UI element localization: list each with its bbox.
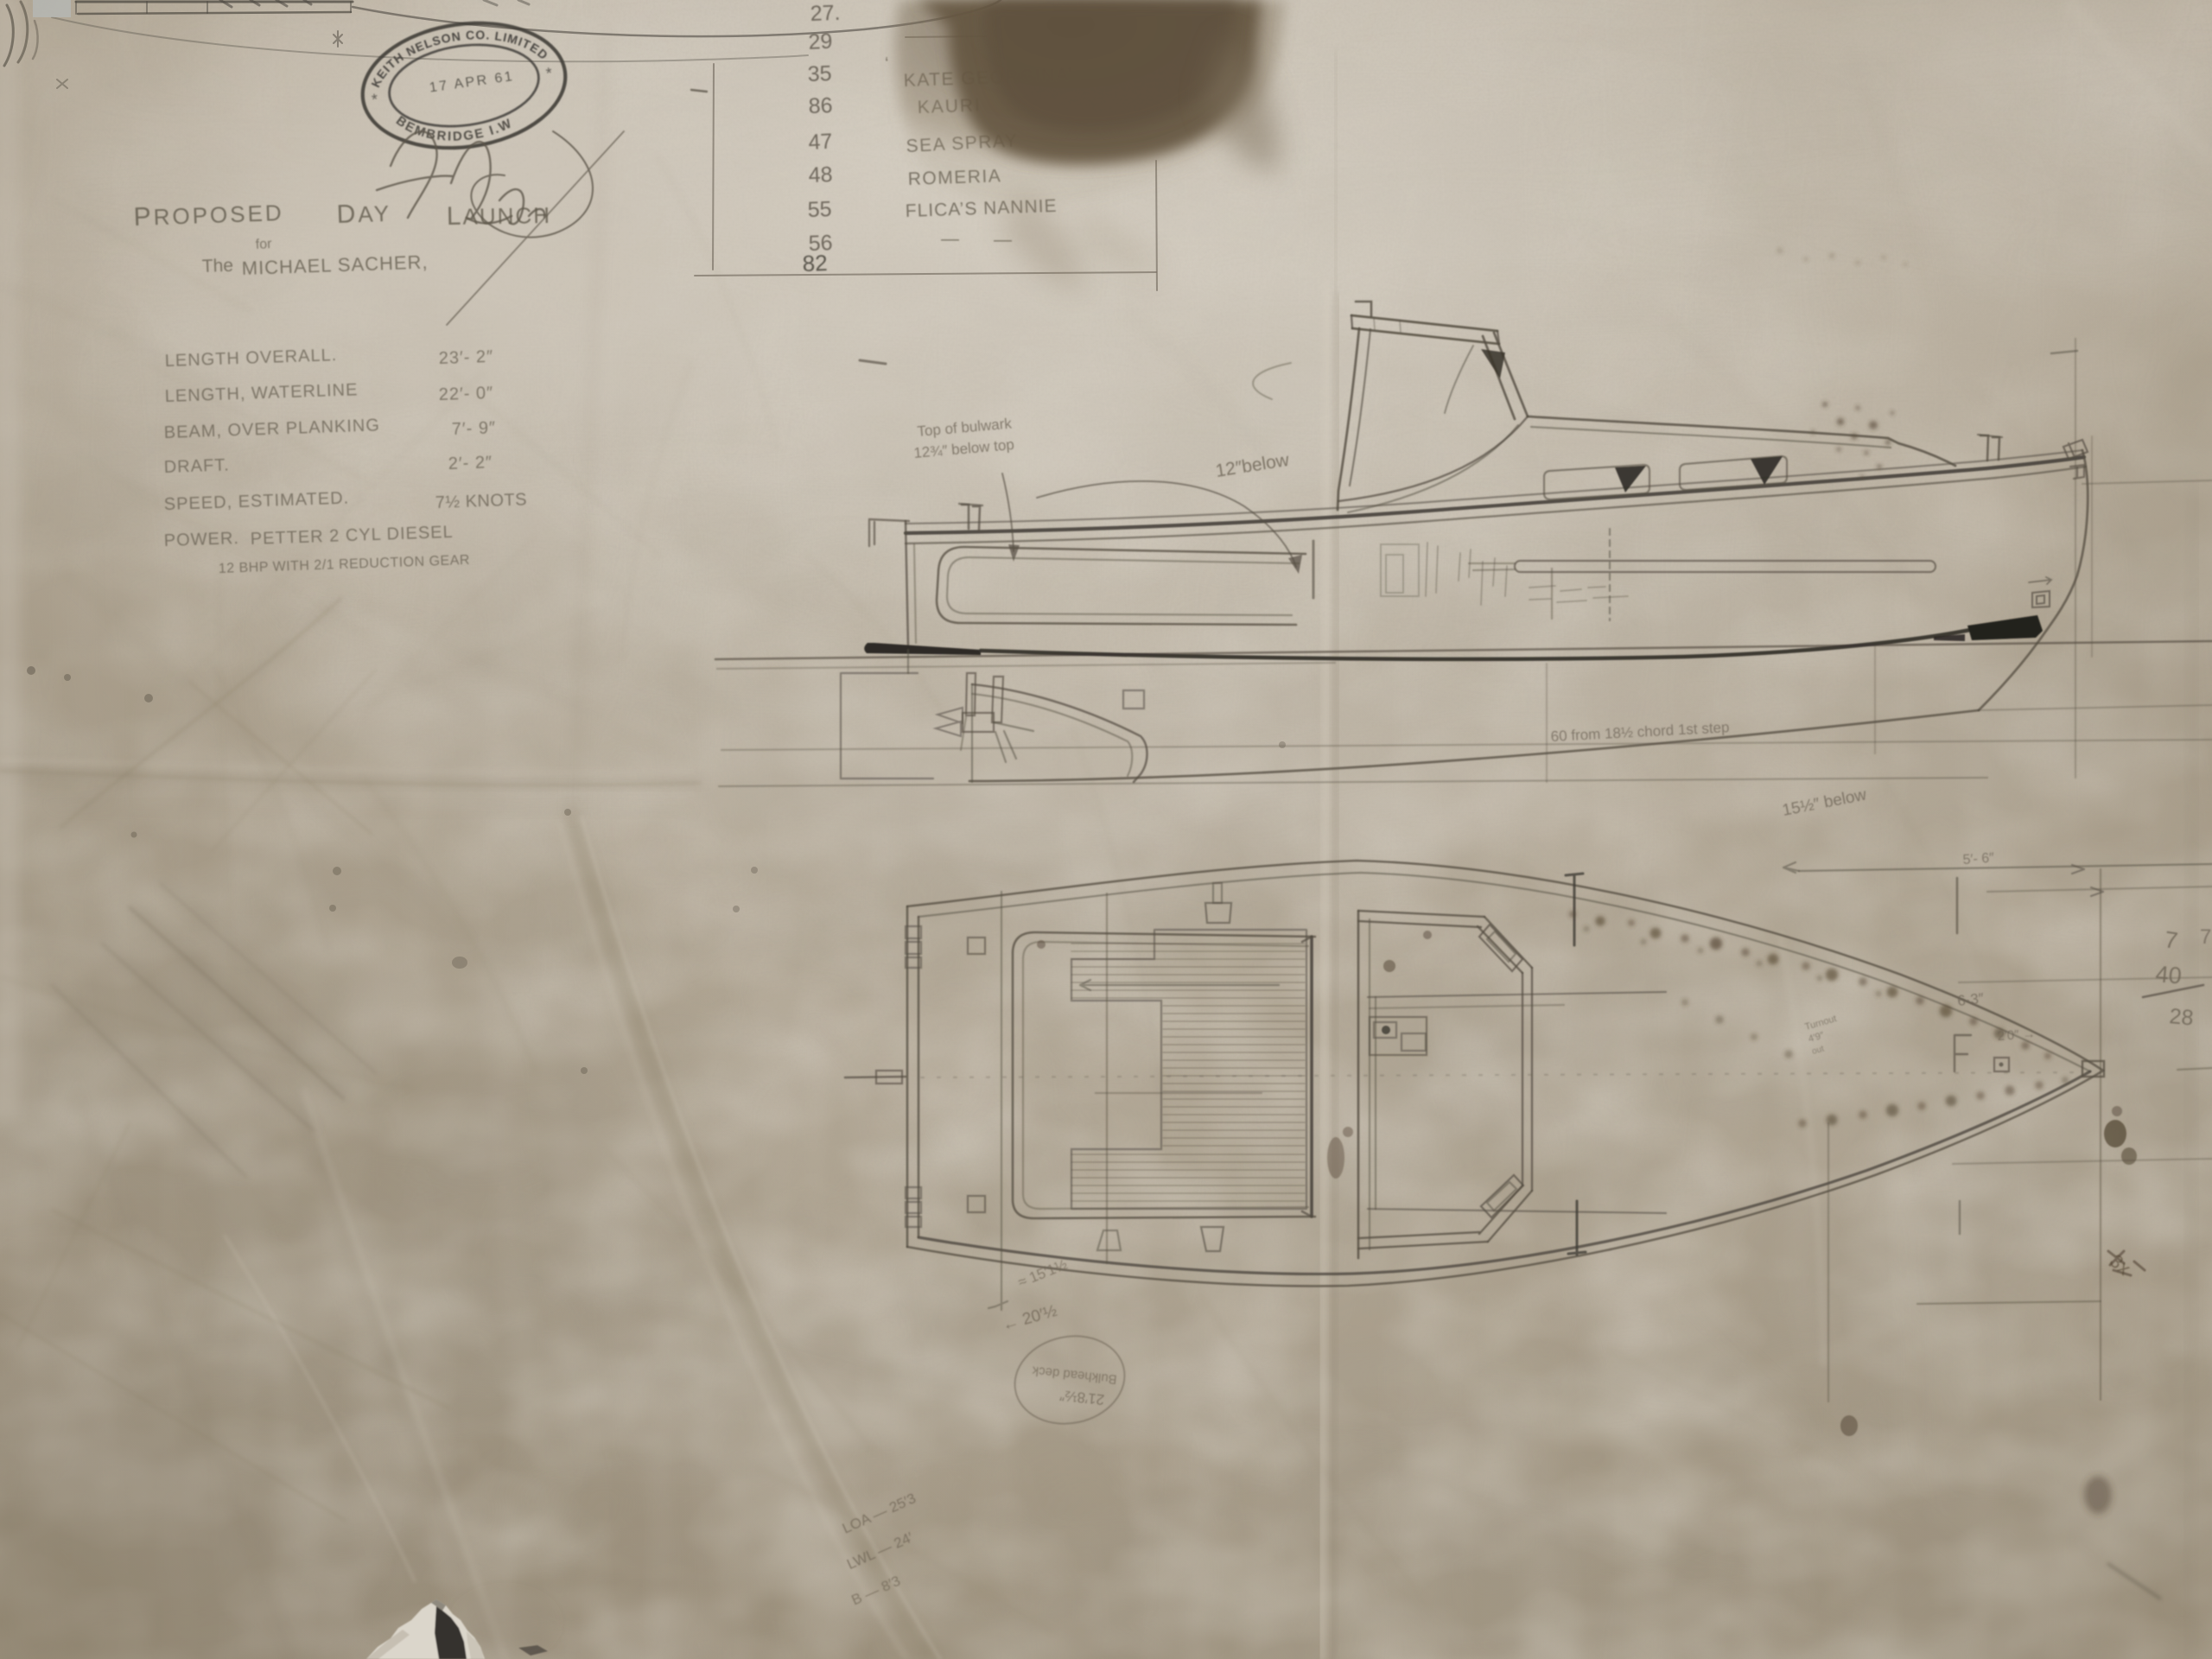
svg-text:86: 86: [808, 93, 833, 118]
svg-text:—: —: [941, 229, 959, 249]
svg-text:DRAFT.: DRAFT.: [163, 455, 230, 477]
svg-text:7½ KNOTS: 7½ KNOTS: [435, 490, 527, 512]
svg-text:55: 55: [807, 197, 832, 222]
svg-text:35: 35: [807, 61, 832, 86]
svg-text:DAY: DAY: [336, 199, 392, 229]
svg-text:2′0″ →: 2′0″ →: [1997, 1027, 2036, 1044]
svg-text:48: 48: [808, 162, 833, 188]
svg-text:POWER.: POWER.: [163, 529, 239, 550]
svg-text:‘: ‘: [885, 54, 888, 73]
svg-text:7′- 9″: 7′- 9″: [451, 418, 496, 439]
svg-text:27.: 27.: [810, 1, 841, 26]
svg-text:47: 47: [808, 130, 833, 155]
svg-text:7: 7: [2200, 925, 2211, 949]
svg-text:for: for: [255, 237, 272, 252]
svg-text:6·3″: 6·3″: [1956, 990, 1984, 1009]
svg-text:The: The: [201, 256, 233, 276]
svg-text:2′- 2″: 2′- 2″: [448, 453, 493, 474]
svg-text:28: 28: [2168, 1004, 2194, 1030]
svg-text:23′- 2″: 23′- 2″: [438, 347, 493, 368]
svg-text:40: 40: [2154, 961, 2183, 989]
svg-text:LAUNCH: LAUNCH: [447, 200, 552, 231]
svg-text:22′- 0″: 22′- 0″: [438, 384, 493, 404]
svg-text:82: 82: [802, 250, 828, 276]
svg-text:5′- 6″: 5′- 6″: [1962, 850, 1995, 868]
svg-text:29: 29: [808, 29, 833, 54]
